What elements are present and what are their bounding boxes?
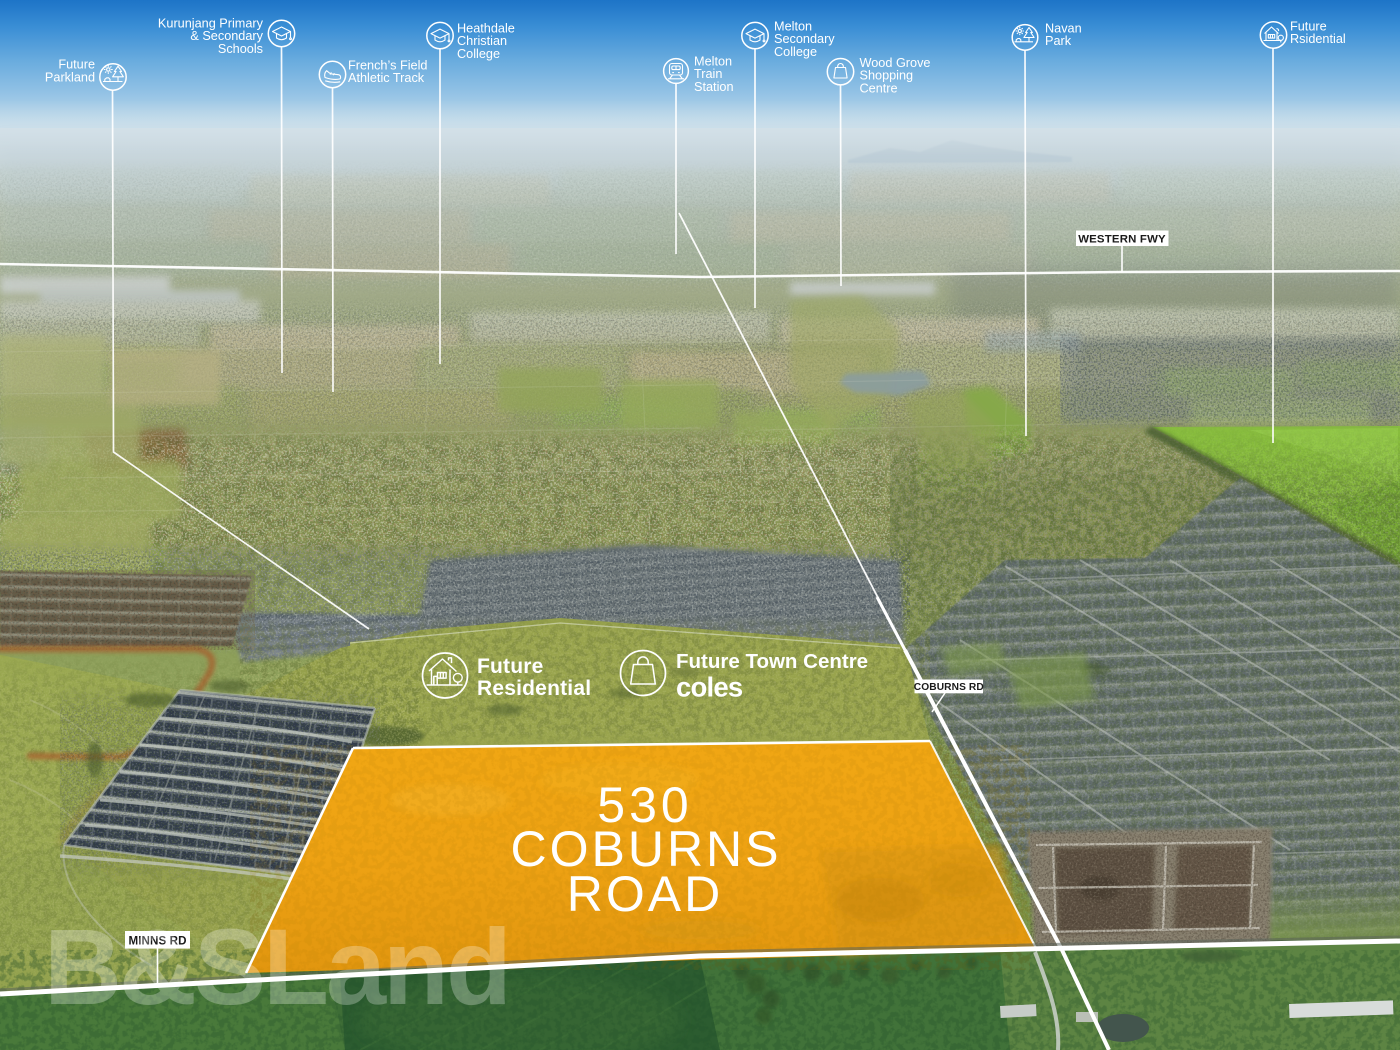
svg-text:Parkland: Parkland — [45, 71, 95, 85]
svg-text:Park: Park — [1045, 34, 1072, 48]
svg-text:Station: Station — [694, 80, 734, 94]
svg-text:Future Town Centre: Future Town Centre — [676, 650, 868, 673]
svg-text:COBURNS RD: COBURNS RD — [914, 682, 984, 693]
svg-text:Centre: Centre — [860, 81, 898, 95]
svg-text:Schools: Schools — [218, 42, 263, 56]
svg-text:Residential: Residential — [477, 677, 591, 700]
svg-text:coles: coles — [676, 672, 743, 703]
svg-text:Athletic Track: Athletic Track — [348, 71, 425, 85]
svg-text:College: College — [457, 47, 500, 61]
svg-text:ROAD: ROAD — [567, 866, 723, 922]
svg-text:WESTERN FWY: WESTERN FWY — [1078, 234, 1166, 246]
svg-text:College: College — [774, 45, 817, 59]
svg-text:B&SLand: B&SLand — [44, 906, 509, 1027]
svg-text:Future: Future — [477, 655, 544, 678]
svg-text:Future: Future — [58, 58, 95, 72]
svg-text:Rsidential: Rsidential — [1290, 32, 1346, 46]
